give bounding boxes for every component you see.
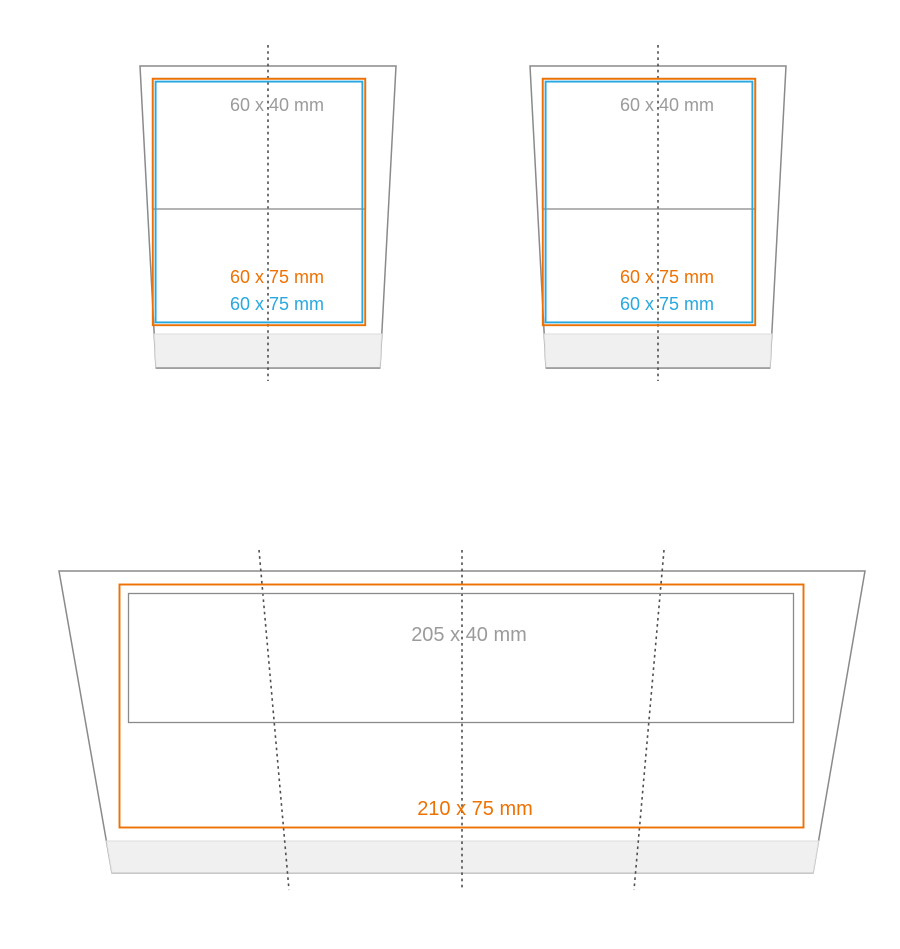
- top-area-label: 205 x 40 mm: [411, 624, 527, 646]
- print-area-blue-label: 60 x 75 mm: [620, 294, 714, 314]
- print-area-blue-label: 60 x 75 mm: [230, 294, 324, 314]
- large-cup-wrap: 205 x 40 mm 210 x 75 mm: [59, 550, 865, 890]
- print-area-diagram: 60 x 40 mm 60 x 75 mm 60 x 75 mm 60 x 40…: [0, 0, 900, 949]
- top-area-label: 60 x 40 mm: [230, 95, 324, 115]
- print-area-orange-label: 60 x 75 mm: [230, 267, 324, 287]
- diagram-svg: 60 x 40 mm 60 x 75 mm 60 x 75 mm 60 x 40…: [0, 0, 900, 949]
- small-cup-left: 60 x 40 mm 60 x 75 mm 60 x 75 mm: [140, 45, 396, 381]
- print-area-orange-label: 60 x 75 mm: [620, 267, 714, 287]
- top-area-label: 60 x 40 mm: [620, 95, 714, 115]
- print-area-label: 210 x 75 mm: [417, 798, 533, 820]
- small-cup-right: 60 x 40 mm 60 x 75 mm 60 x 75 mm: [530, 45, 786, 381]
